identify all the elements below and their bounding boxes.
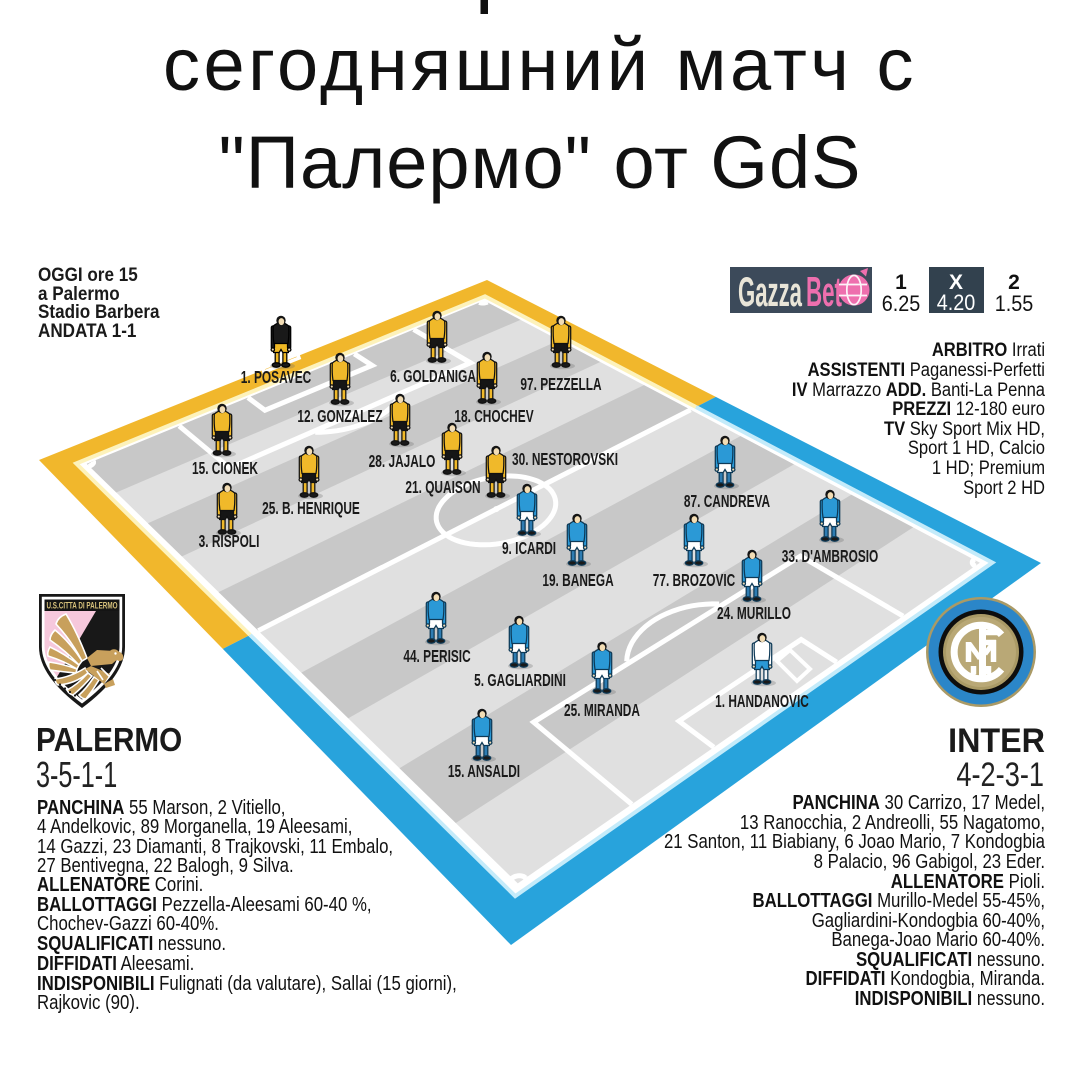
svg-text:18. CHOCHEV: 18. CHOCHEV	[454, 407, 534, 427]
svg-text:1. HANDANOVIC: 1. HANDANOVIC	[715, 692, 809, 712]
svg-text:44. PERISIC: 44. PERISIC	[403, 647, 470, 667]
svg-text:28. JAJALO: 28. JAJALO	[369, 452, 436, 472]
svg-text:33. D'AMBROSIO: 33. D'AMBROSIO	[782, 547, 879, 567]
svg-text:OGGI ore 15: OGGI ore 15	[38, 264, 138, 285]
svg-text:INDISPONIBILI nessuno.: INDISPONIBILI nessuno.	[855, 987, 1045, 1010]
svg-text:1. POSAVEC: 1. POSAVEC	[241, 368, 311, 388]
svg-text:21. QUAISON: 21. QUAISON	[405, 478, 480, 498]
svg-text:Sport 1 HD, Calcio: Sport 1 HD, Calcio	[908, 437, 1045, 459]
svg-text:30. NESTOROVSKI: 30. NESTOROVSKI	[512, 450, 618, 470]
svg-text:сегодняшний матч с: сегодняшний матч с	[163, 23, 917, 106]
svg-text:4-2-3-1: 4-2-3-1	[956, 755, 1044, 794]
svg-text:U.S.CITTA DI PALERMO: U.S.CITTA DI PALERMO	[47, 601, 118, 612]
svg-text:Bet: Bet	[806, 268, 842, 315]
svg-text:ASSISTENTI Paganessi-Perfetti: ASSISTENTI Paganessi-Perfetti	[808, 359, 1045, 381]
svg-text:5. GAGLIARDINI: 5. GAGLIARDINI	[474, 671, 566, 691]
svg-text:2: 2	[1008, 271, 1020, 294]
svg-text:4.20: 4.20	[937, 291, 976, 315]
svg-text:Gazza: Gazza	[738, 268, 802, 315]
svg-text:3-5-1-1: 3-5-1-1	[36, 755, 117, 796]
svg-text:12. GONZALEZ: 12. GONZALEZ	[297, 407, 382, 427]
svg-text:3. RISPOLI: 3. RISPOLI	[199, 532, 260, 552]
svg-text:"Палермо" от GdS: "Палермо" от GdS	[218, 121, 861, 204]
svg-text:6.25: 6.25	[882, 292, 921, 316]
svg-text:97. PEZZELLA: 97. PEZZELLA	[520, 375, 601, 395]
svg-text:Sport 2 HD: Sport 2 HD	[963, 477, 1045, 499]
svg-text:87. CANDREVA: 87. CANDREVA	[684, 492, 770, 512]
svg-text:PREZZI 12-180 euro: PREZZI 12-180 euro	[892, 398, 1045, 420]
svg-text:6. GOLDANIGA: 6. GOLDANIGA	[390, 367, 476, 387]
svg-text:1: 1	[895, 271, 907, 294]
svg-text:ANDATA 1-1: ANDATA 1-1	[38, 320, 136, 341]
svg-text:9. ICARDI: 9. ICARDI	[502, 539, 556, 559]
svg-text:24. MURILLO: 24. MURILLO	[717, 604, 791, 624]
svg-text:19. BANEGA: 19. BANEGA	[542, 571, 613, 591]
svg-text:25. MIRANDA: 25. MIRANDA	[564, 701, 640, 721]
svg-text:PALERMO: PALERMO	[36, 722, 182, 759]
svg-text:25. B. HENRIQUE: 25. B. HENRIQUE	[262, 499, 360, 519]
svg-text:1.55: 1.55	[995, 292, 1034, 316]
svg-text:15. ANSALDI: 15. ANSALDI	[448, 762, 520, 782]
svg-text:1 HD; Premium: 1 HD; Premium	[932, 457, 1045, 479]
svg-text:Stadio Barbera: Stadio Barbera	[38, 301, 160, 322]
svg-text:15. CIONEK: 15. CIONEK	[192, 459, 258, 479]
svg-text:Rajkovic (90).: Rajkovic (90).	[37, 991, 140, 1014]
svg-text:77. BROZOVIC: 77. BROZOVIC	[653, 571, 736, 591]
svg-text:ARBITRO Irrati: ARBITRO Irrati	[932, 339, 1045, 361]
